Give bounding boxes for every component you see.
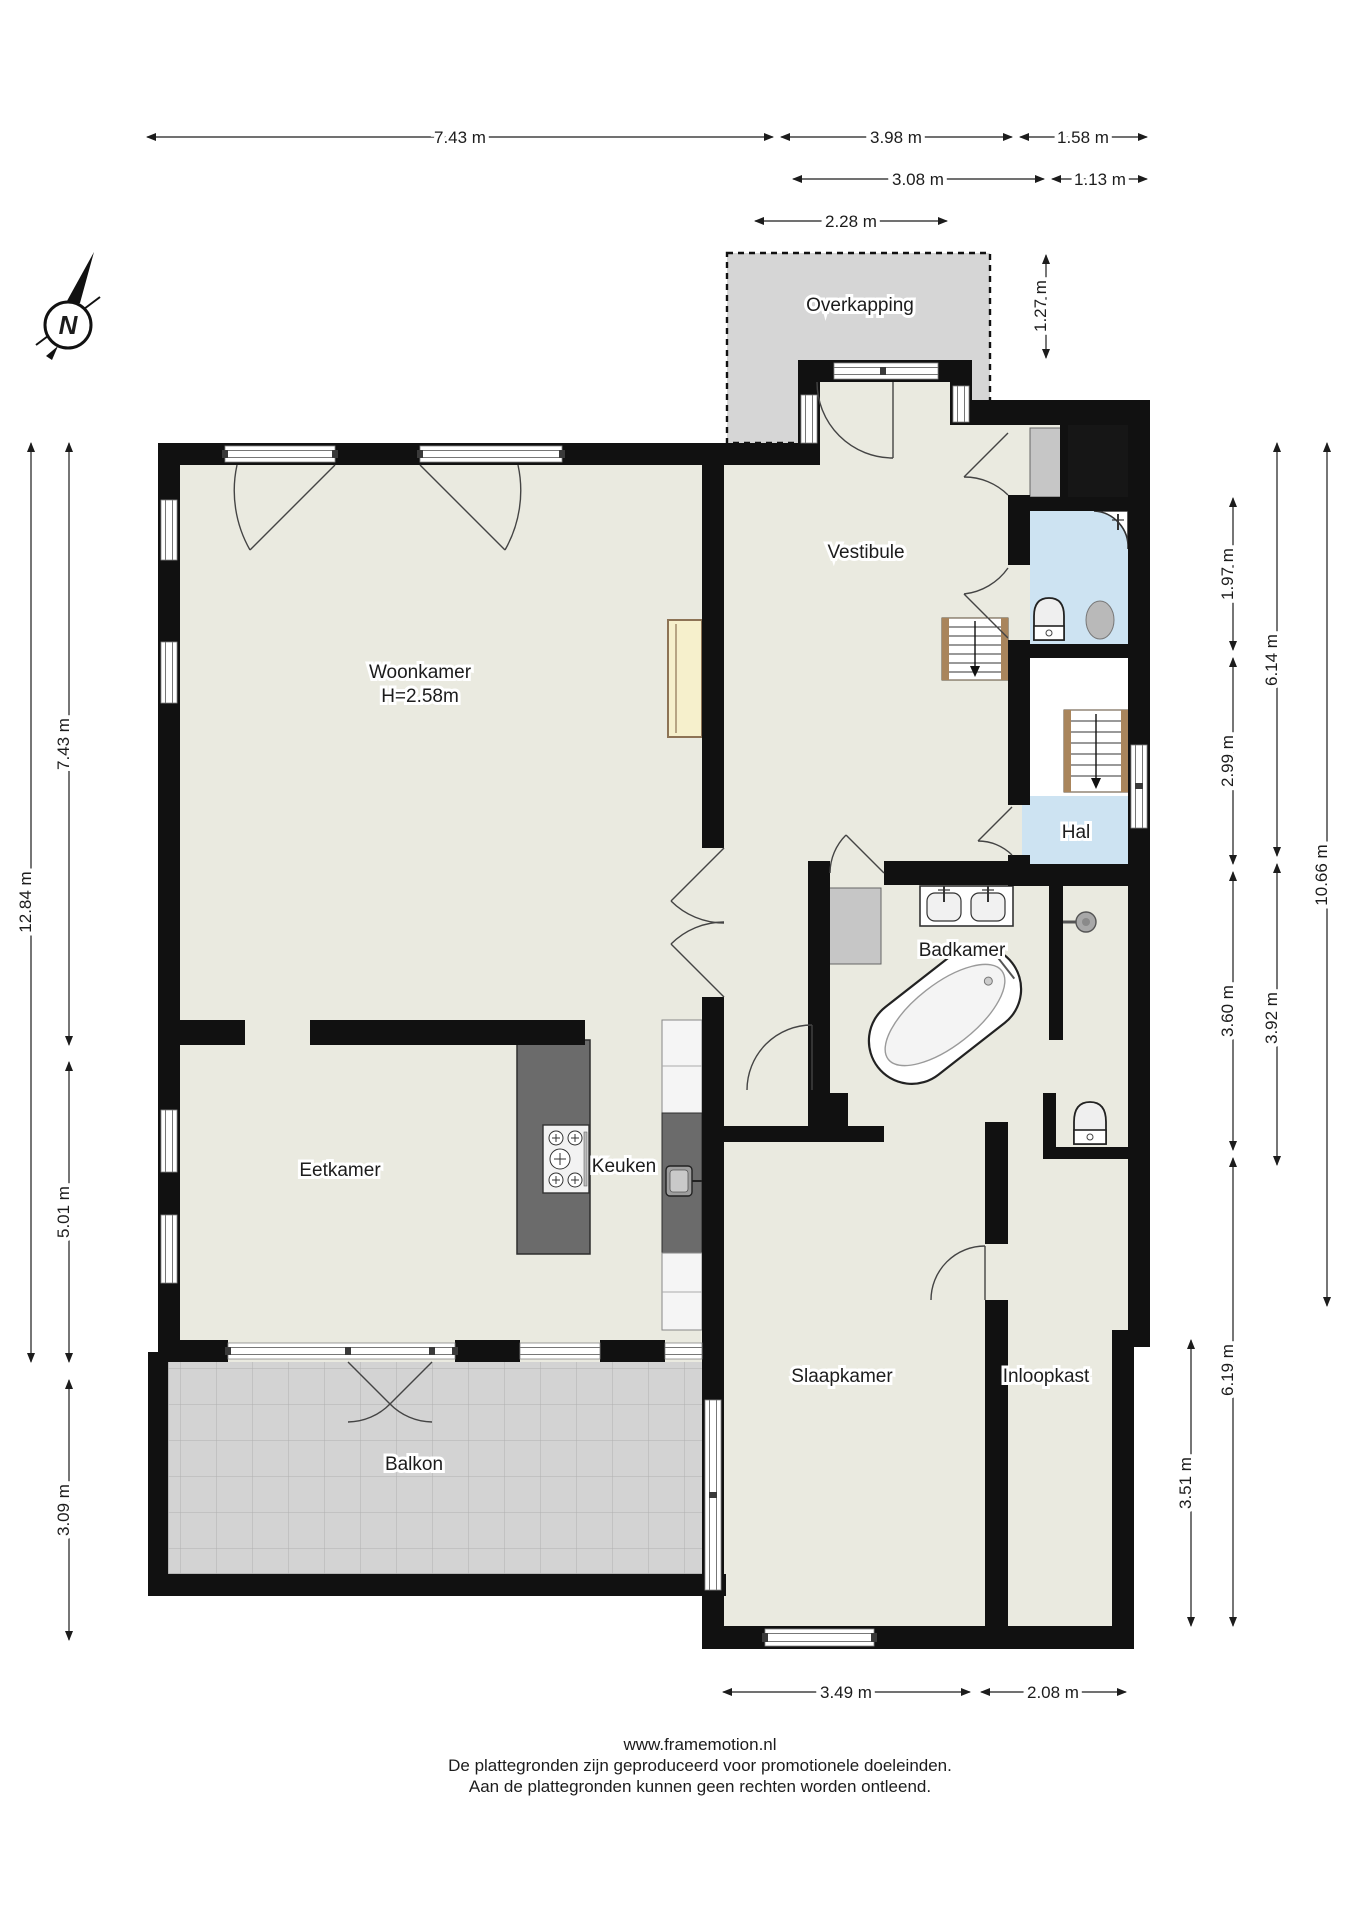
closet-badkamer [824,888,881,964]
dim-top-127: 1.27 m [1031,255,1050,358]
dim-bottom-349: 3.49 m [723,1683,970,1702]
floorplan-page: N Overkapping [0,0,1358,1920]
svg-text:10.66 m: 10.66 m [1312,844,1331,905]
window-woonkamer-left-2 [161,642,177,703]
room-label-keuken: Keuken [592,1156,656,1177]
chimney-block [1066,425,1128,497]
room-height-woonkamer: H=2.58m [381,686,459,707]
footer-line2: Aan de plattegronden kunnen geen rechten… [469,1777,931,1796]
window-eetkamer-bottom-1 [225,1343,458,1359]
svg-text:7.43 m: 7.43 m [54,718,73,770]
room-label-eetkamer: Eetkamer [299,1160,381,1181]
svg-text:6.19 m: 6.19 m [1218,1344,1237,1396]
svg-text:3.08 m: 3.08 m [892,170,944,189]
window-woonkamer-top-2 [417,446,565,462]
svg-text:6.14 m: 6.14 m [1262,634,1281,686]
dim-top-113: 1.13 m [1052,170,1147,189]
dim-right-614: 6.14 m [1262,443,1281,856]
compass-label: N [59,310,79,340]
compass-icon: N [36,252,100,360]
svg-text:3.51 m: 3.51 m [1176,1457,1195,1509]
svg-text:1.97 m: 1.97 m [1218,548,1237,600]
svg-text:1.58 m: 1.58 m [1057,128,1109,147]
dimensions-left: 12.84 m 7.43 m 5.01 m 3.09 m [16,443,73,1640]
dim-left-743: 7.43 m [54,443,73,1045]
room-label-woonkamer: Woonkamer [369,662,472,683]
svg-text:2.08 m: 2.08 m [1027,1683,1079,1702]
bidet-icon [1086,601,1114,639]
footer-url: www.framemotion.nl [622,1735,776,1754]
dim-bottom-208: 2.08 m [981,1683,1126,1702]
stove-icon [543,1125,589,1193]
dim-top-743: 7.43 m [147,128,773,147]
room-label-inloopkast: Inloopkast [1003,1366,1090,1387]
dimensions-top: 7.43 m 3.98 m 1.58 m 3.08 m 1.13 m 2.28 … [147,128,1147,358]
window-eetkamer-left-1 [161,1110,177,1172]
floorplan-canvas: N Overkapping [0,0,1358,1920]
dim-top-228: 2.28 m [755,212,947,231]
svg-text:3.49 m: 3.49 m [820,1683,872,1702]
room-label-slaapkamer: Slaapkamer [791,1366,893,1387]
svg-text:5.01 m: 5.01 m [54,1186,73,1238]
room-label-balkon: Balkon [385,1454,443,1475]
toilet-icon [1034,598,1064,640]
closet-vestibule [1030,428,1062,497]
window-eetkamer-left-2 [161,1215,177,1283]
room-label-hal: Hal [1062,822,1091,843]
window-woonkamer-top-1 [222,446,338,462]
svg-text:1.13 m: 1.13 m [1074,170,1126,189]
window-hal-right [1131,745,1147,828]
room-label-badkamer: Badkamer [919,940,1006,961]
svg-text:3.98 m: 3.98 m [870,128,922,147]
toilet2-icon [1074,1102,1106,1144]
svg-text:3.09 m: 3.09 m [54,1484,73,1536]
stairs-hal-icon [1064,710,1128,792]
footer-line1: De plattegronden zijn geproduceerd voor … [448,1756,952,1775]
cabinet-woonkamer [668,620,702,737]
dim-top-398: 3.98 m [781,128,1012,147]
window-entrance-left [801,395,817,443]
dim-right-392: 3.92 m [1262,864,1281,1165]
dim-right-619: 6.19 m [1218,1158,1237,1626]
double-sink-icon [920,886,1013,926]
dim-right-351: 3.51 m [1176,1340,1195,1626]
window-slaapkamer-bottom [762,1629,877,1646]
dim-left-501: 5.01 m [54,1062,73,1362]
dim-right-360: 3.60 m [1218,872,1237,1150]
dim-right-197: 1.97 m [1218,498,1237,650]
svg-text:3.92 m: 3.92 m [1262,992,1281,1044]
dim-top-158: 1.58 m [1020,128,1147,147]
svg-text:1.27 m: 1.27 m [1031,280,1050,332]
window-woonkamer-left-1 [161,500,177,560]
window-entrance-sidelight [834,363,938,379]
kitchen-counter [662,1020,702,1330]
window-slaapkamer-left [705,1400,721,1590]
svg-text:2.28 m: 2.28 m [825,212,877,231]
svg-text:7.43 m: 7.43 m [434,128,486,147]
kitchen-island [517,1040,590,1254]
svg-text:2.99 m: 2.99 m [1218,735,1237,787]
svg-text:12.84 m: 12.84 m [16,871,35,932]
window-keuken-bottom [665,1343,702,1359]
window-entrance-right [953,386,969,422]
dimensions-right: 1.97 m 6.14 m 10.66 m 2.99 m 3.60 m 3.92… [1176,443,1331,1626]
dim-left-309: 3.09 m [54,1380,73,1640]
room-label-overkapping: Overkapping [806,295,914,316]
dimensions-bottom: 3.49 m 2.08 m [723,1683,1126,1702]
dim-right-299: 2.99 m [1218,658,1237,864]
dim-left-1284: 12.84 m [16,443,35,1362]
dim-top-308: 3.08 m [793,170,1044,189]
room-label-vestibule: Vestibule [827,542,904,563]
svg-text:3.60 m: 3.60 m [1218,985,1237,1037]
footer: www.framemotion.nl De plattegronden zijn… [448,1735,952,1796]
dim-right-1066: 10.66 m [1312,443,1331,1306]
window-eetkamer-bottom-2 [520,1343,600,1359]
